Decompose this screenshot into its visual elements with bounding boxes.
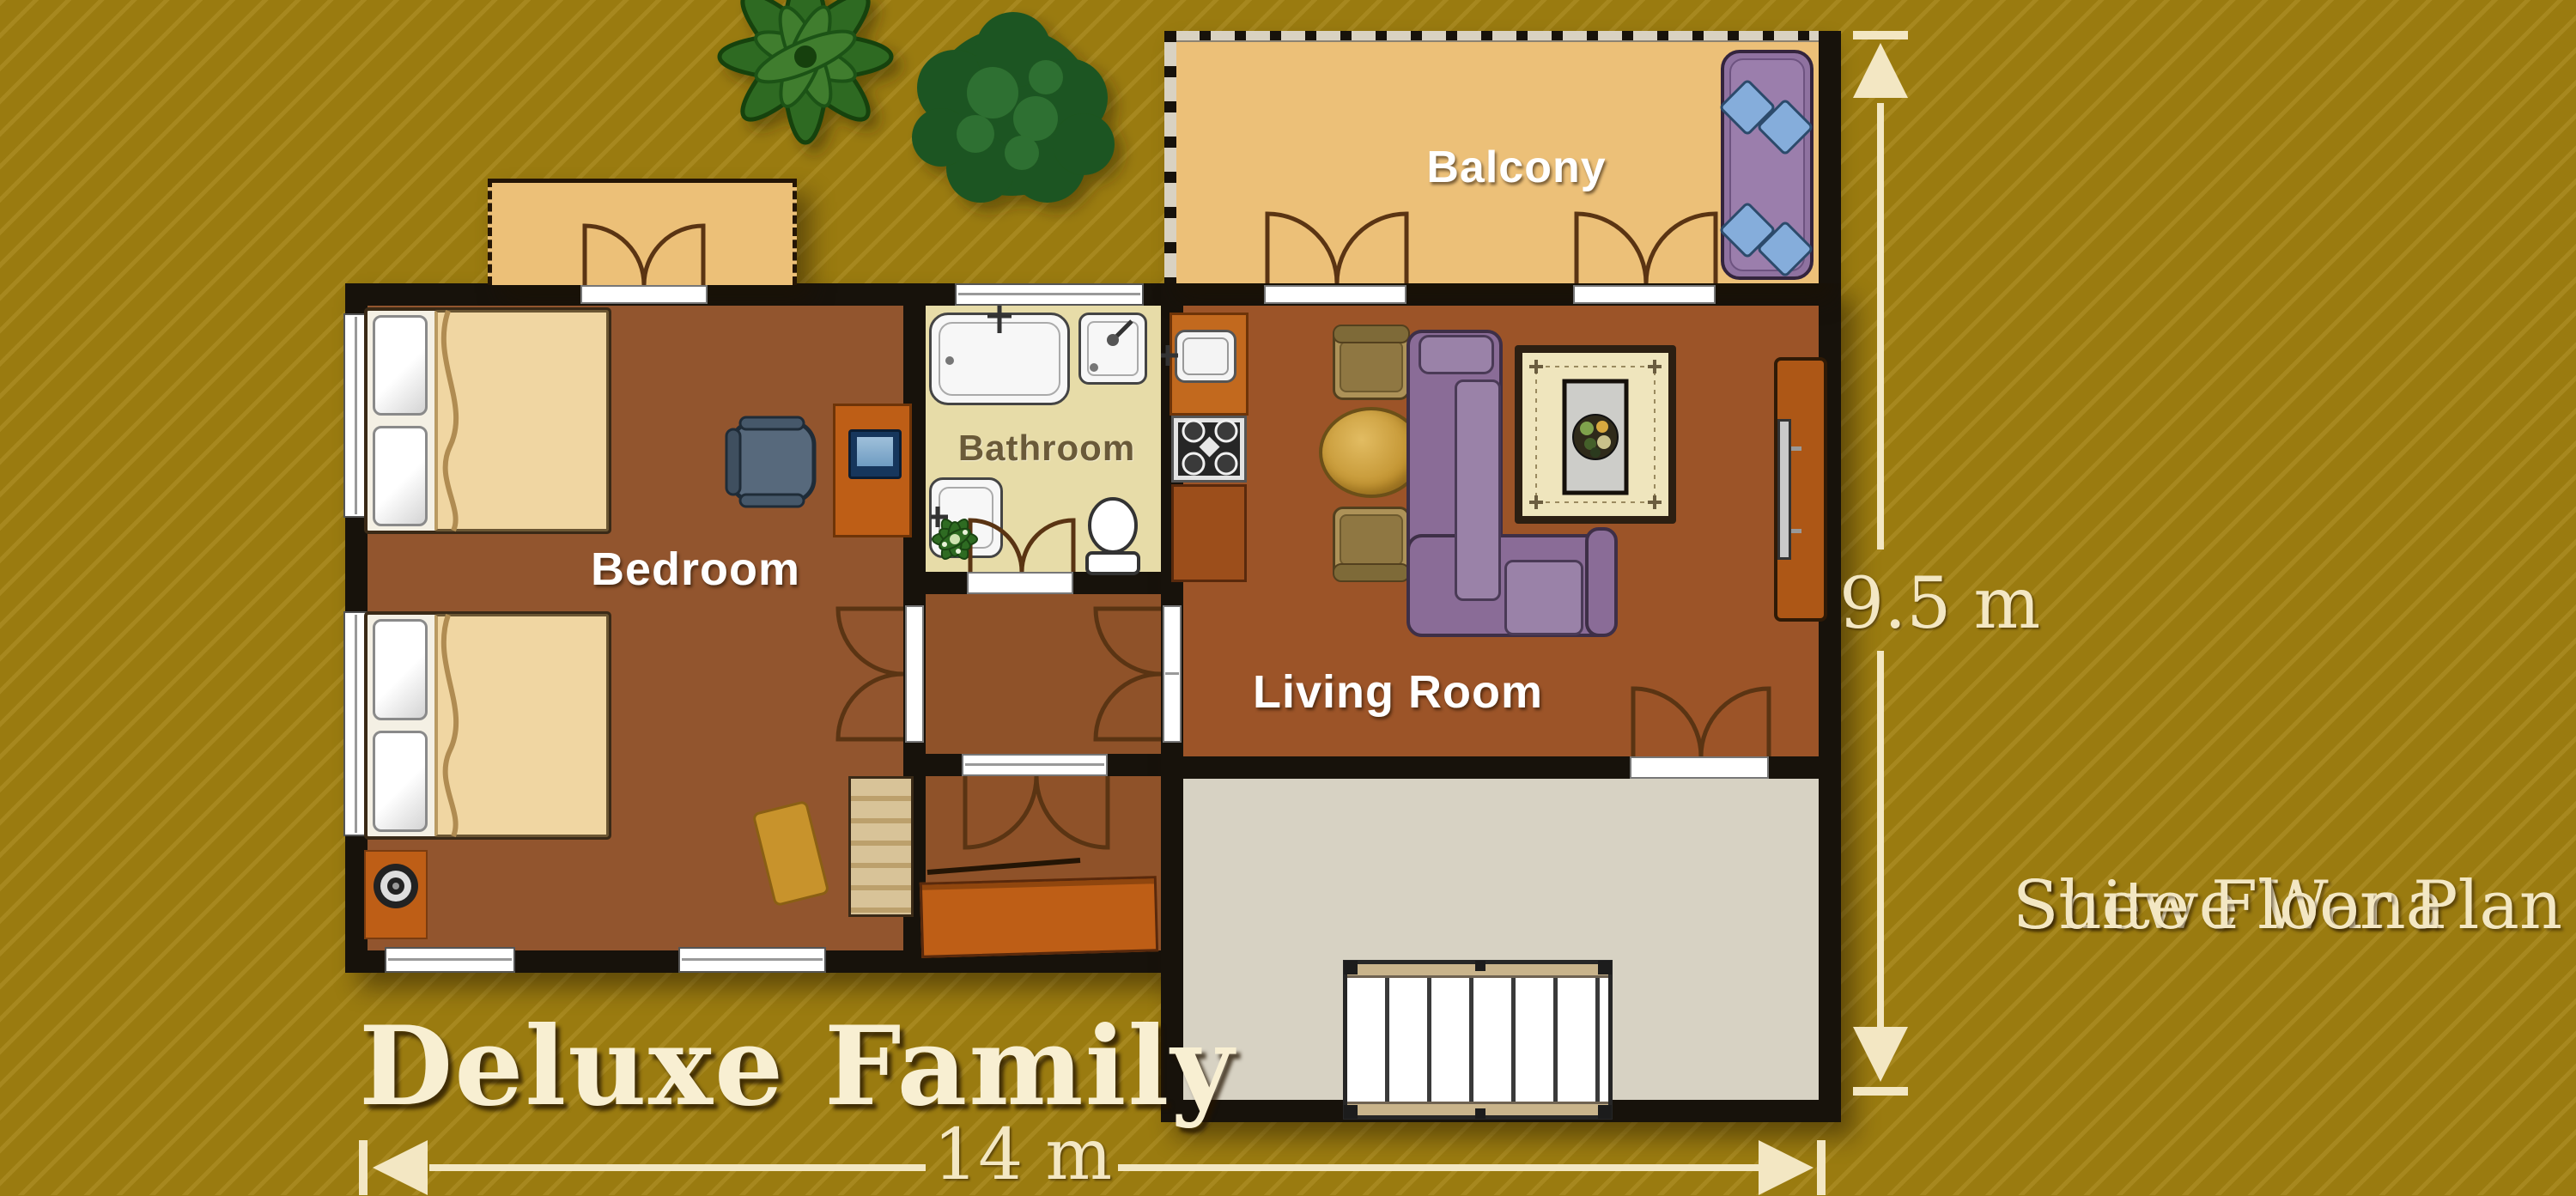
window-icon [385, 947, 515, 973]
laptop-icon [848, 429, 902, 479]
stove-top [1178, 422, 1240, 476]
sofa-cushion-icon [1419, 335, 1494, 374]
bedroom-door-threshold [905, 605, 924, 743]
porch-door-threshold [580, 285, 708, 304]
shower-tray [1087, 321, 1139, 376]
pillow-icon [373, 731, 428, 832]
plan-caption: Deluxe Family [359, 1003, 1236, 1130]
sliding-door-threshold [962, 754, 1108, 776]
sink-basin [1182, 337, 1229, 375]
bathtub-basin [939, 322, 1060, 396]
balcony-door-threshold [1573, 285, 1716, 304]
stair-post [1598, 961, 1612, 974]
window-icon [955, 283, 1144, 306]
dining-chair-icon [1333, 507, 1410, 582]
sink-basin [939, 487, 993, 549]
kitchen-sink-icon [1175, 330, 1236, 383]
kitchen-cabinet-icon [1171, 484, 1247, 582]
hallway-door-threshold [1163, 605, 1182, 743]
sofa-cushion-icon [1504, 560, 1583, 635]
balcony-door-threshold [1264, 285, 1406, 304]
pillow-icon [373, 426, 428, 526]
hallway-floor [926, 594, 1161, 754]
bathroom-sink-icon [929, 477, 1003, 558]
height-dimension-label: 9.5 m [1839, 563, 2040, 645]
bedroom-label: Bedroom [591, 543, 800, 596]
balcony-wall [1819, 31, 1841, 283]
stair-treads [1347, 978, 1608, 1102]
stove-icon [1171, 416, 1247, 483]
bench-icon [848, 776, 914, 917]
bed-icon [364, 611, 611, 840]
living-room-label: Living Room [1253, 665, 1543, 719]
balcony-railing-icon [1164, 31, 1841, 42]
plant-icon [720, 0, 891, 143]
speaker-icon [364, 850, 428, 939]
tv-bracket-icon [1791, 446, 1801, 451]
bathtub-icon [929, 313, 1070, 405]
sideboard-icon [920, 876, 1158, 958]
stairs-icon [1343, 960, 1613, 1120]
balcony-railing-left-icon [1164, 31, 1176, 283]
pillow-icon [373, 619, 428, 720]
balcony-label: Balcony [1426, 142, 1606, 193]
porch-floor [488, 179, 797, 285]
tv-bracket-icon [1791, 529, 1801, 533]
bathroom-label: Bathroom [958, 428, 1135, 469]
entry-door-threshold [1630, 756, 1769, 779]
laptop-screen [857, 437, 893, 466]
sofa-armrest-icon [1585, 527, 1618, 637]
pillow-icon [373, 315, 428, 416]
sofa-cushion-icon [1455, 379, 1501, 601]
stair-post [1475, 1108, 1485, 1119]
bathroom-door-threshold [967, 572, 1073, 594]
stair-post [1475, 961, 1485, 971]
stair-post [1344, 961, 1358, 974]
bed-icon [364, 307, 611, 534]
width-dimension-label: 14 m [927, 1114, 1118, 1196]
tv-icon [1777, 419, 1791, 560]
floor-plan-canvas: Balcony Bedroom Bathroom Living Room Del… [0, 0, 2576, 1195]
side-title-line2: Suite Floor Plan [2013, 862, 2562, 950]
blanket-icon [434, 614, 609, 837]
tree-icon [912, 12, 1115, 203]
dining-chair-icon [1333, 325, 1410, 400]
window-icon [678, 947, 826, 973]
stair-post [1344, 1105, 1358, 1119]
blanket-icon [434, 310, 609, 531]
shower-icon [1078, 313, 1147, 385]
stair-post [1598, 1105, 1612, 1119]
